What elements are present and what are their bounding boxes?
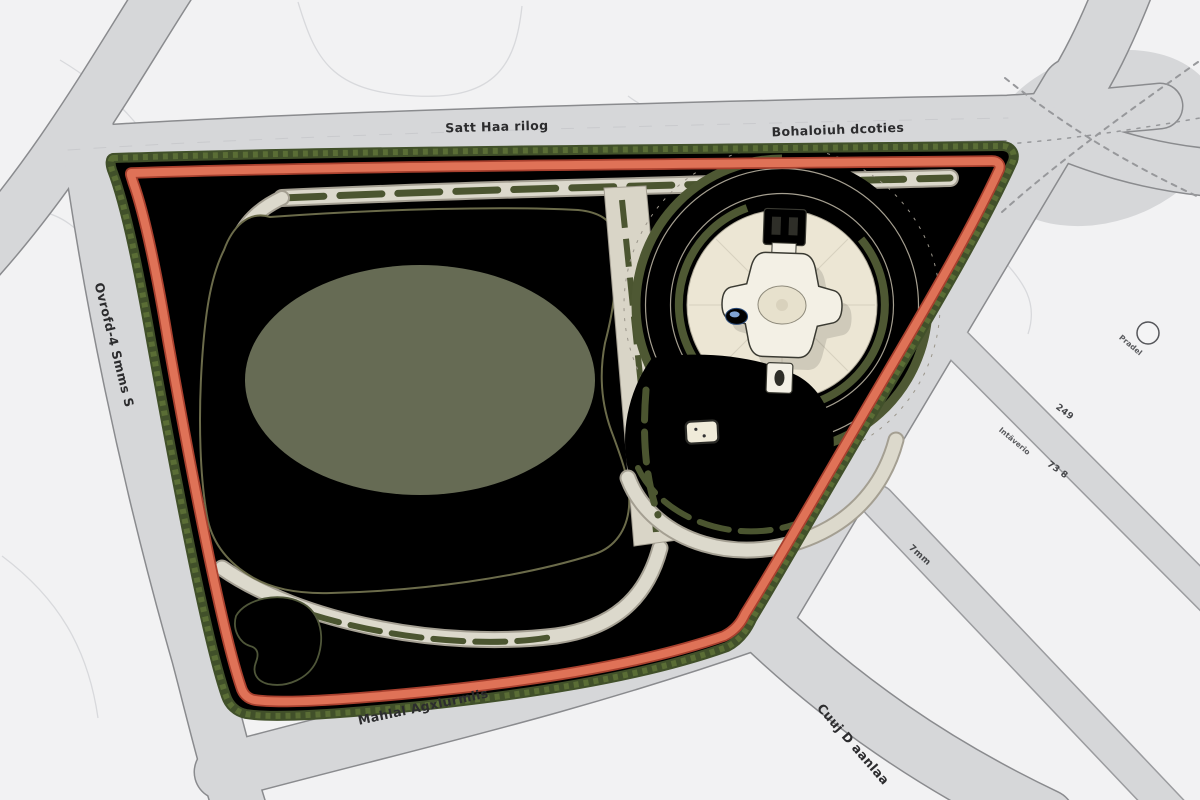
pavilion-window bbox=[771, 217, 781, 235]
pavilion-north-wing bbox=[763, 208, 806, 245]
sandbox bbox=[685, 420, 718, 444]
roundabout-circle bbox=[1137, 322, 1159, 344]
road-label-top: Satt Haa rilog bbox=[445, 118, 549, 136]
field-highlight bbox=[245, 265, 595, 495]
pavilion-window bbox=[788, 217, 798, 235]
site-plan: Satt Haa rilog Bohaloiuh dcoties Ovrofd-… bbox=[0, 0, 1200, 800]
